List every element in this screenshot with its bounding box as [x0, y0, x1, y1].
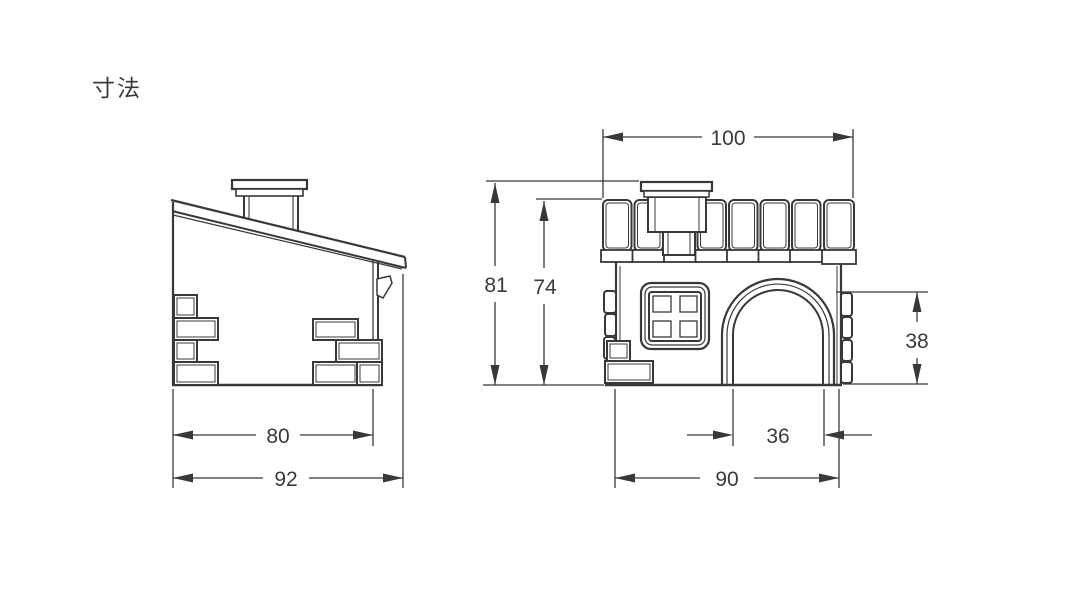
arrowhead: [713, 431, 733, 440]
front-roof-tiles: [601, 200, 856, 264]
roof-tile-foot: [822, 250, 856, 264]
roof-tile-foot: [601, 250, 634, 262]
side-roof: [171, 200, 406, 269]
arrowhead: [173, 474, 193, 483]
side-roof-end-cap: [405, 257, 406, 268]
arrowhead: [491, 365, 500, 385]
side-roof-top-line: [171, 200, 405, 257]
front-chimney-cap: [641, 182, 712, 191]
door-arch-outer: [722, 279, 834, 385]
side-chimney-cap-band: [236, 189, 303, 196]
dimension-drawing: 寸法: [0, 0, 1080, 605]
roof-tile-foot: [727, 250, 760, 262]
roof-tile: [729, 200, 758, 251]
front-view: 100 81 74 38: [483, 127, 929, 491]
side-roof-bottom-line: [172, 211, 406, 268]
roof-tile-foot: [790, 250, 823, 262]
arrowhead: [615, 474, 635, 483]
dim-label-door-height: 38: [905, 330, 928, 353]
arrowhead: [833, 133, 853, 142]
dim-label-roof-width: 100: [710, 127, 745, 150]
dim-label-door-width: 36: [766, 425, 789, 448]
roof-tile-foot: [759, 250, 792, 262]
dim-side-body-width: 80: [173, 389, 373, 488]
side-bricks-left: [174, 295, 218, 385]
page-title: 寸法: [92, 75, 142, 101]
front-chimney-body: [648, 197, 706, 232]
side-chimney-cap: [232, 180, 307, 189]
side-roof-inner-line: [173, 215, 402, 269]
dimension-diagram-page: 寸法: [0, 0, 1080, 605]
arrowhead: [491, 183, 500, 203]
arrowhead: [819, 474, 839, 483]
front-bricks-right: [841, 293, 852, 383]
arrowhead: [824, 431, 844, 440]
door-arch-mid: [727, 284, 829, 385]
gutter-bracket: [377, 276, 392, 298]
roof-tile: [603, 200, 632, 251]
brick: [841, 362, 852, 383]
arrowhead: [383, 474, 403, 483]
arrowhead: [913, 292, 922, 312]
arrowhead: [540, 365, 549, 385]
dim-front-body-height: 74: [533, 199, 602, 385]
dim-label-overall-height: 81: [484, 274, 507, 297]
door-arch-inner: [733, 290, 823, 385]
roof-tile: [761, 200, 790, 251]
dim-front-door-width: 36: [687, 389, 872, 448]
brick: [842, 340, 852, 361]
front-door-arch: [722, 279, 834, 385]
dim-label-side-overall-width: 92: [274, 468, 297, 491]
side-bricks-right: [313, 319, 382, 385]
dim-label-body-height: 74: [533, 276, 557, 299]
side-view: 80 92: [171, 180, 406, 491]
roof-tile: [792, 200, 821, 251]
dim-label-side-body-width: 80: [266, 425, 289, 448]
arrowhead: [353, 431, 373, 440]
brick: [604, 291, 616, 313]
roof-tile-foot: [633, 250, 666, 262]
roof-tile: [824, 200, 854, 251]
side-chimney: [232, 180, 307, 230]
dim-front-body-width: 90: [615, 389, 839, 491]
brick: [841, 293, 852, 316]
brick: [842, 317, 852, 338]
brick: [605, 314, 616, 336]
arrowhead: [603, 133, 623, 142]
front-chimney-cap-band: [644, 191, 709, 197]
arrowhead: [540, 201, 549, 221]
arrowhead: [913, 364, 922, 384]
dim-label-front-body-width: 90: [715, 468, 738, 491]
arrowhead: [173, 431, 193, 440]
roof-tile-foot: [696, 250, 729, 262]
front-window: [641, 283, 709, 349]
